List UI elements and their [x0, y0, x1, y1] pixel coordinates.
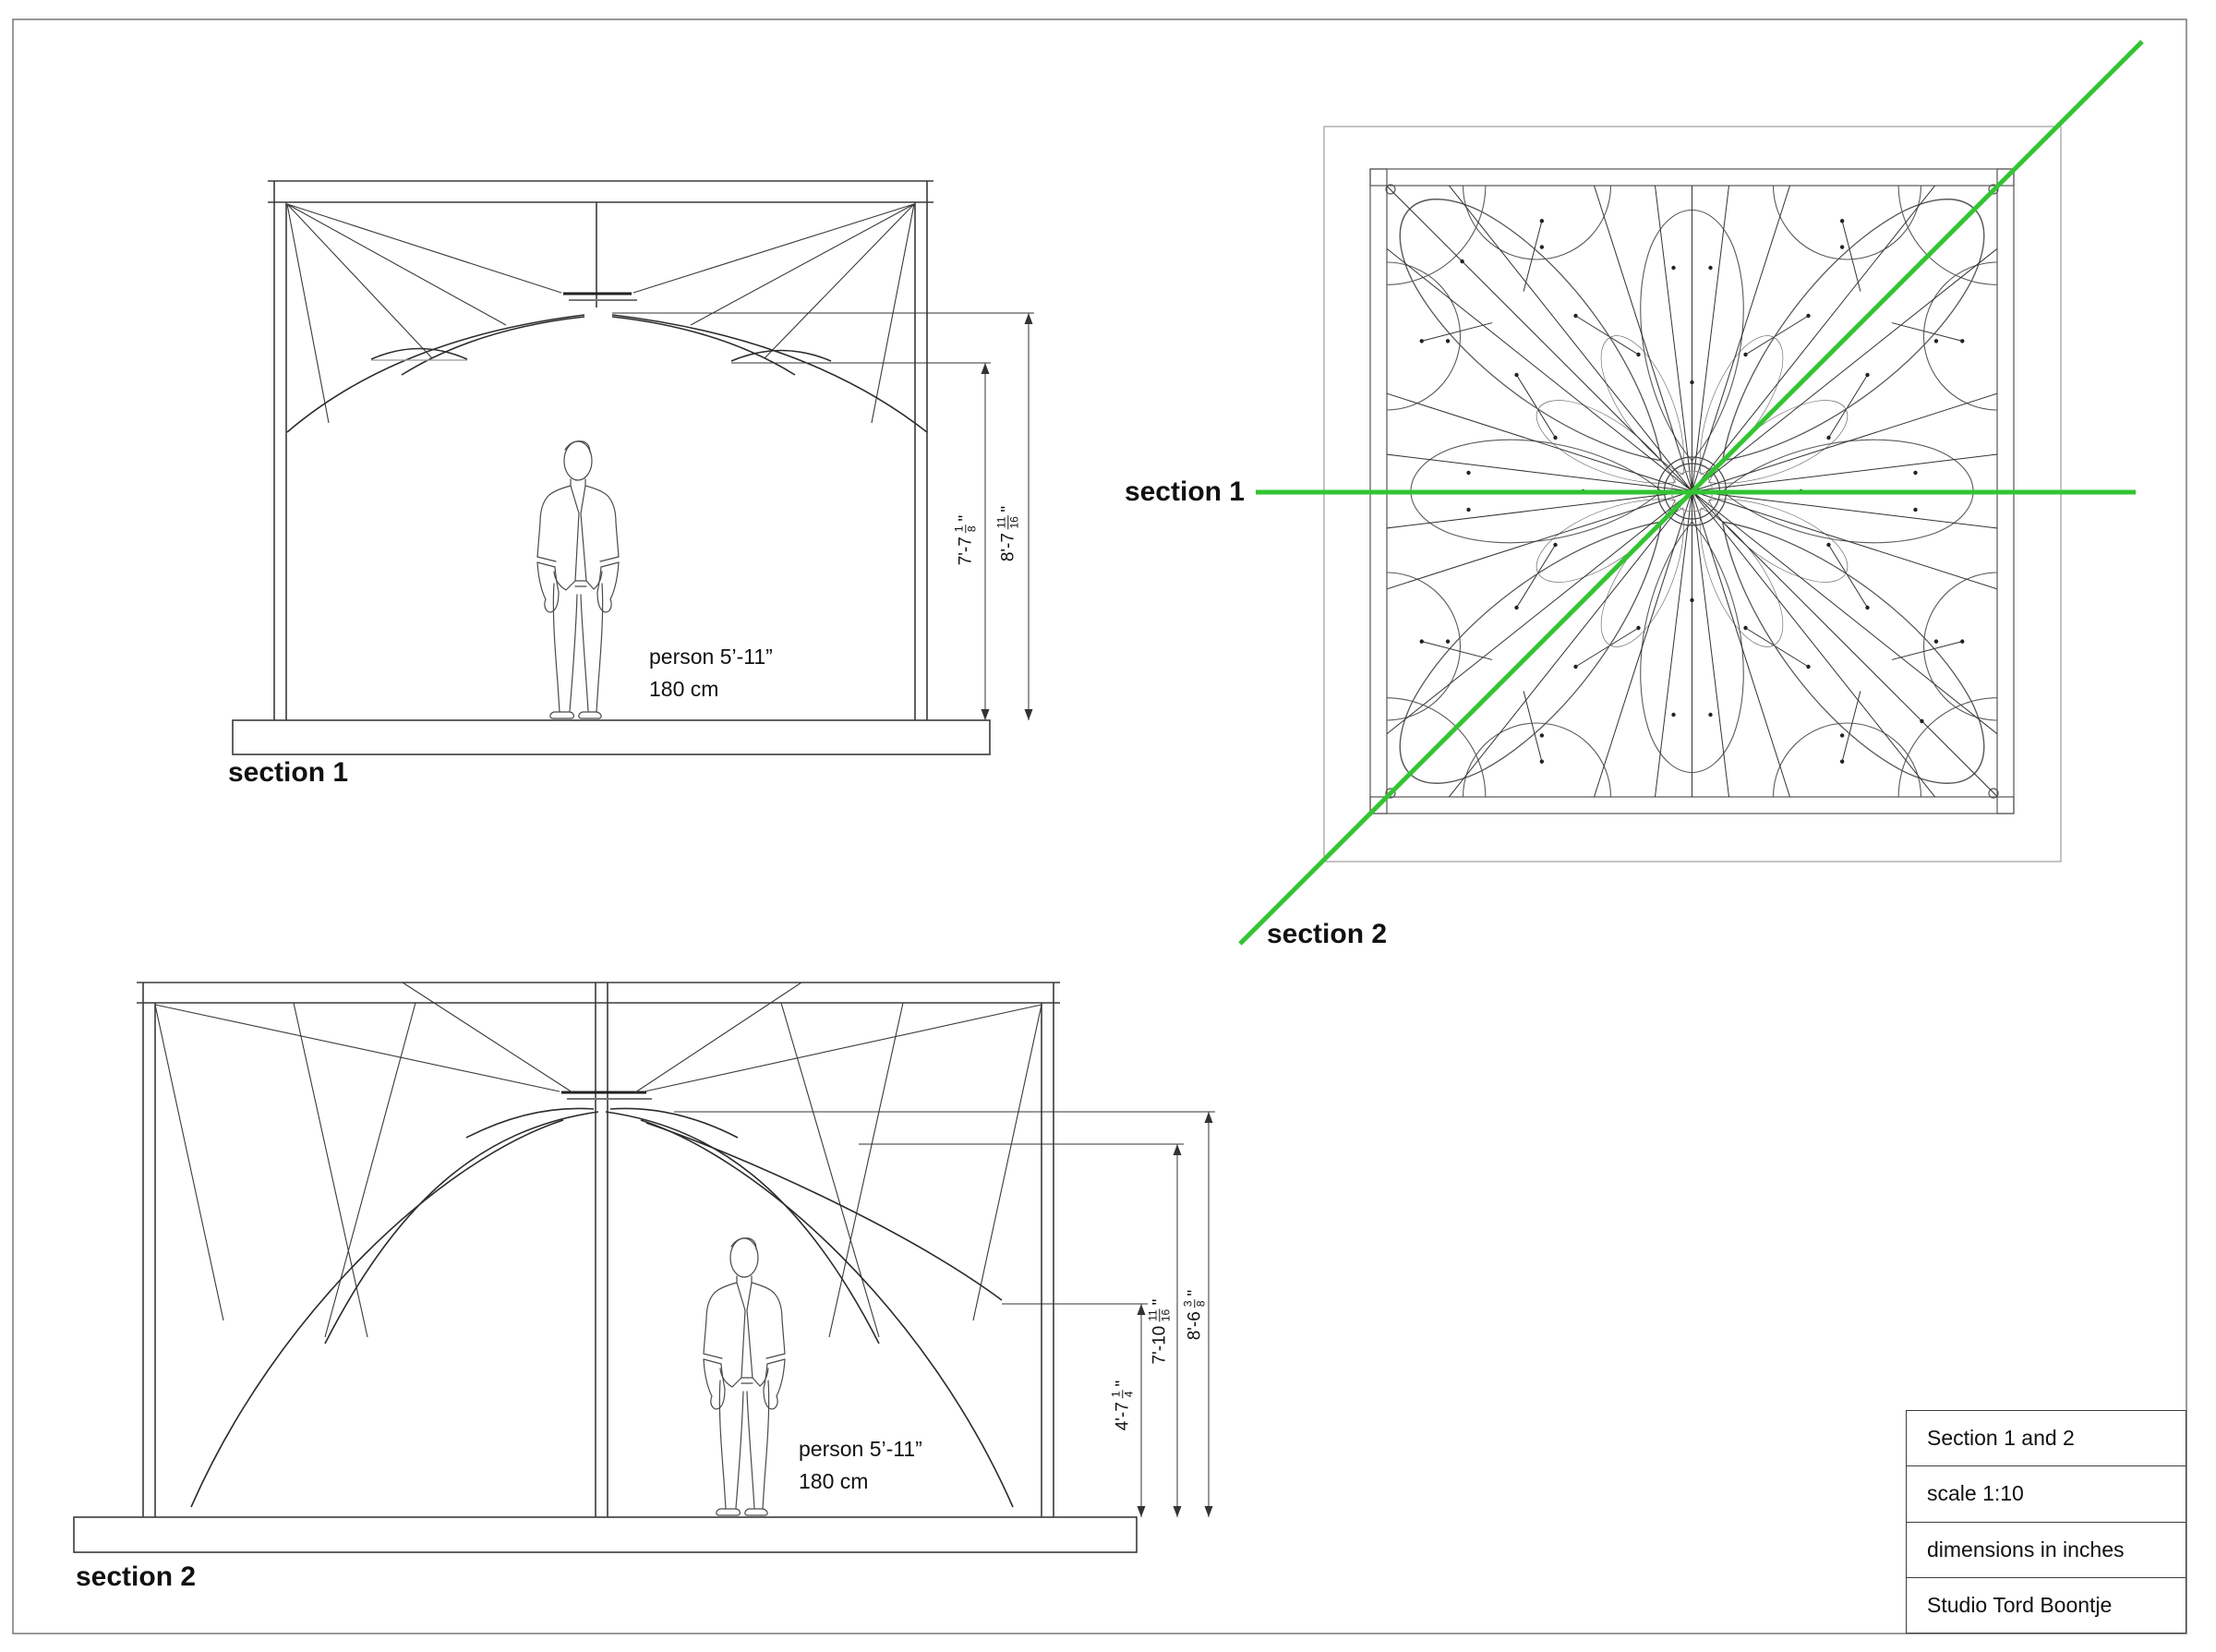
sheet-border	[13, 19, 2186, 1634]
person-height-metric: 180 cm	[649, 673, 773, 705]
section1-drawing	[233, 181, 1034, 754]
section2-drawing	[74, 983, 1215, 1552]
dimension-label-s2-low: 4'-714"	[1110, 1381, 1135, 1431]
drawing-sheet: section 1 section 2 person 5’-11” 180 cm…	[0, 0, 2216, 1652]
person-height-imperial: person 5’-11”	[799, 1433, 922, 1465]
title-block-scale: scale 1:10	[1907, 1465, 2186, 1521]
person-note-section2: person 5’-11” 180 cm	[799, 1433, 922, 1497]
person-figure-section2	[704, 1238, 785, 1515]
section1-canopy	[287, 315, 927, 432]
dimension-label-s1-outer: 8'-71116"	[995, 506, 1020, 561]
sheet-linework	[0, 0, 2216, 1652]
dimension-label-s1-inner: 7'-718"	[953, 515, 978, 566]
dimension-label-s2-high: 8'-638"	[1182, 1290, 1207, 1341]
dimension-label-s2-mid: 7'-101116"	[1147, 1299, 1172, 1365]
person-height-metric: 180 cm	[799, 1465, 922, 1498]
title-block-studio: Studio Tord Boontje	[1907, 1577, 2186, 1633]
plan-section1-line-label: section 1	[1125, 476, 1245, 508]
title-block: Section 1 and 2 scale 1:10 dimensions in…	[1906, 1410, 2186, 1634]
person-figure-section1	[537, 441, 619, 718]
title-block-units: dimensions in inches	[1907, 1522, 2186, 1577]
section2-cables	[155, 983, 1042, 1337]
person-height-imperial: person 5’-11”	[649, 641, 773, 673]
section1-caption: section 1	[228, 757, 348, 789]
person-note-section1: person 5’-11” 180 cm	[649, 641, 773, 705]
title-block-sheet-name: Section 1 and 2	[1907, 1411, 2186, 1465]
section2-caption: section 2	[76, 1562, 196, 1593]
plan-section2-line-label: section 2	[1267, 919, 1387, 950]
section2-dimension-lines	[674, 1112, 1215, 1517]
